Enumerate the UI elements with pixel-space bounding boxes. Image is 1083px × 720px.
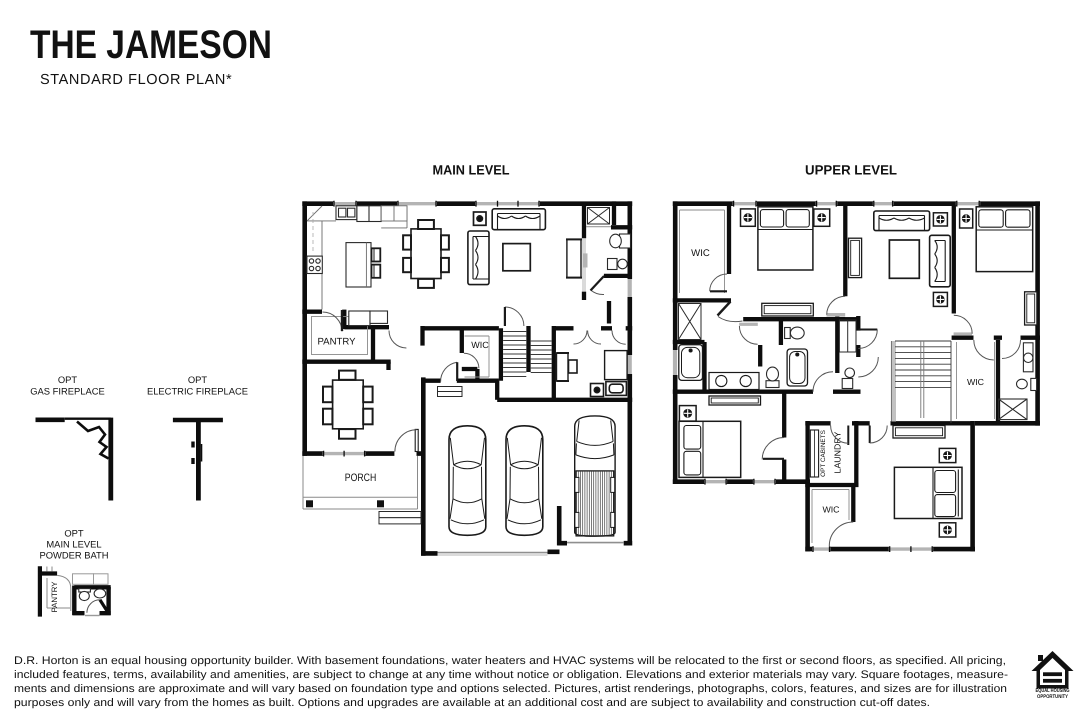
svg-text:OPT: OPT: [188, 374, 208, 385]
svg-text:PANTRY: PANTRY: [317, 337, 356, 348]
svg-text:purposes only and will vary fr: purposes only and will vary from the hom…: [14, 697, 930, 709]
svg-text:POWDER BATH: POWDER BATH: [39, 550, 108, 561]
svg-text:OPT CABINETS: OPT CABINETS: [820, 430, 827, 477]
svg-text:ments and dimensions are appro: ments and dimensions are approximate and…: [14, 683, 1007, 695]
svg-text:WIC: WIC: [822, 504, 840, 514]
svg-text:ELECTRIC FIREPLACE: ELECTRIC FIREPLACE: [147, 386, 248, 397]
svg-text:PANTRY: PANTRY: [50, 581, 59, 613]
svg-text:MAIN LEVEL: MAIN LEVEL: [46, 539, 101, 550]
svg-text:included features, terms, avai: included features, terms, availability a…: [14, 669, 1008, 681]
svg-text:OPPORTUNITY: OPPORTUNITY: [1037, 694, 1068, 700]
svg-text:GAS FIREPLACE: GAS FIREPLACE: [30, 386, 105, 397]
svg-text:STANDARD FLOOR PLAN*: STANDARD FLOOR PLAN*: [40, 72, 232, 88]
svg-text:WIC: WIC: [967, 377, 985, 387]
svg-text:OPT: OPT: [64, 528, 84, 539]
svg-text:EQUAL HOUSING: EQUAL HOUSING: [1036, 688, 1070, 694]
svg-text:WIC: WIC: [691, 248, 710, 259]
svg-text:THE JAMESON: THE JAMESON: [30, 23, 272, 67]
svg-text:OPT: OPT: [58, 374, 78, 385]
svg-text:PORCH: PORCH: [345, 472, 377, 484]
svg-text:MAIN LEVEL: MAIN LEVEL: [433, 163, 510, 178]
svg-text:D.R. Horton is an equal housin: D.R. Horton is an equal housing opportun…: [14, 655, 1006, 667]
svg-text:LAUNDRY: LAUNDRY: [833, 431, 843, 473]
svg-text:WIC: WIC: [471, 340, 489, 350]
svg-text:UPPER LEVEL: UPPER LEVEL: [805, 163, 897, 178]
